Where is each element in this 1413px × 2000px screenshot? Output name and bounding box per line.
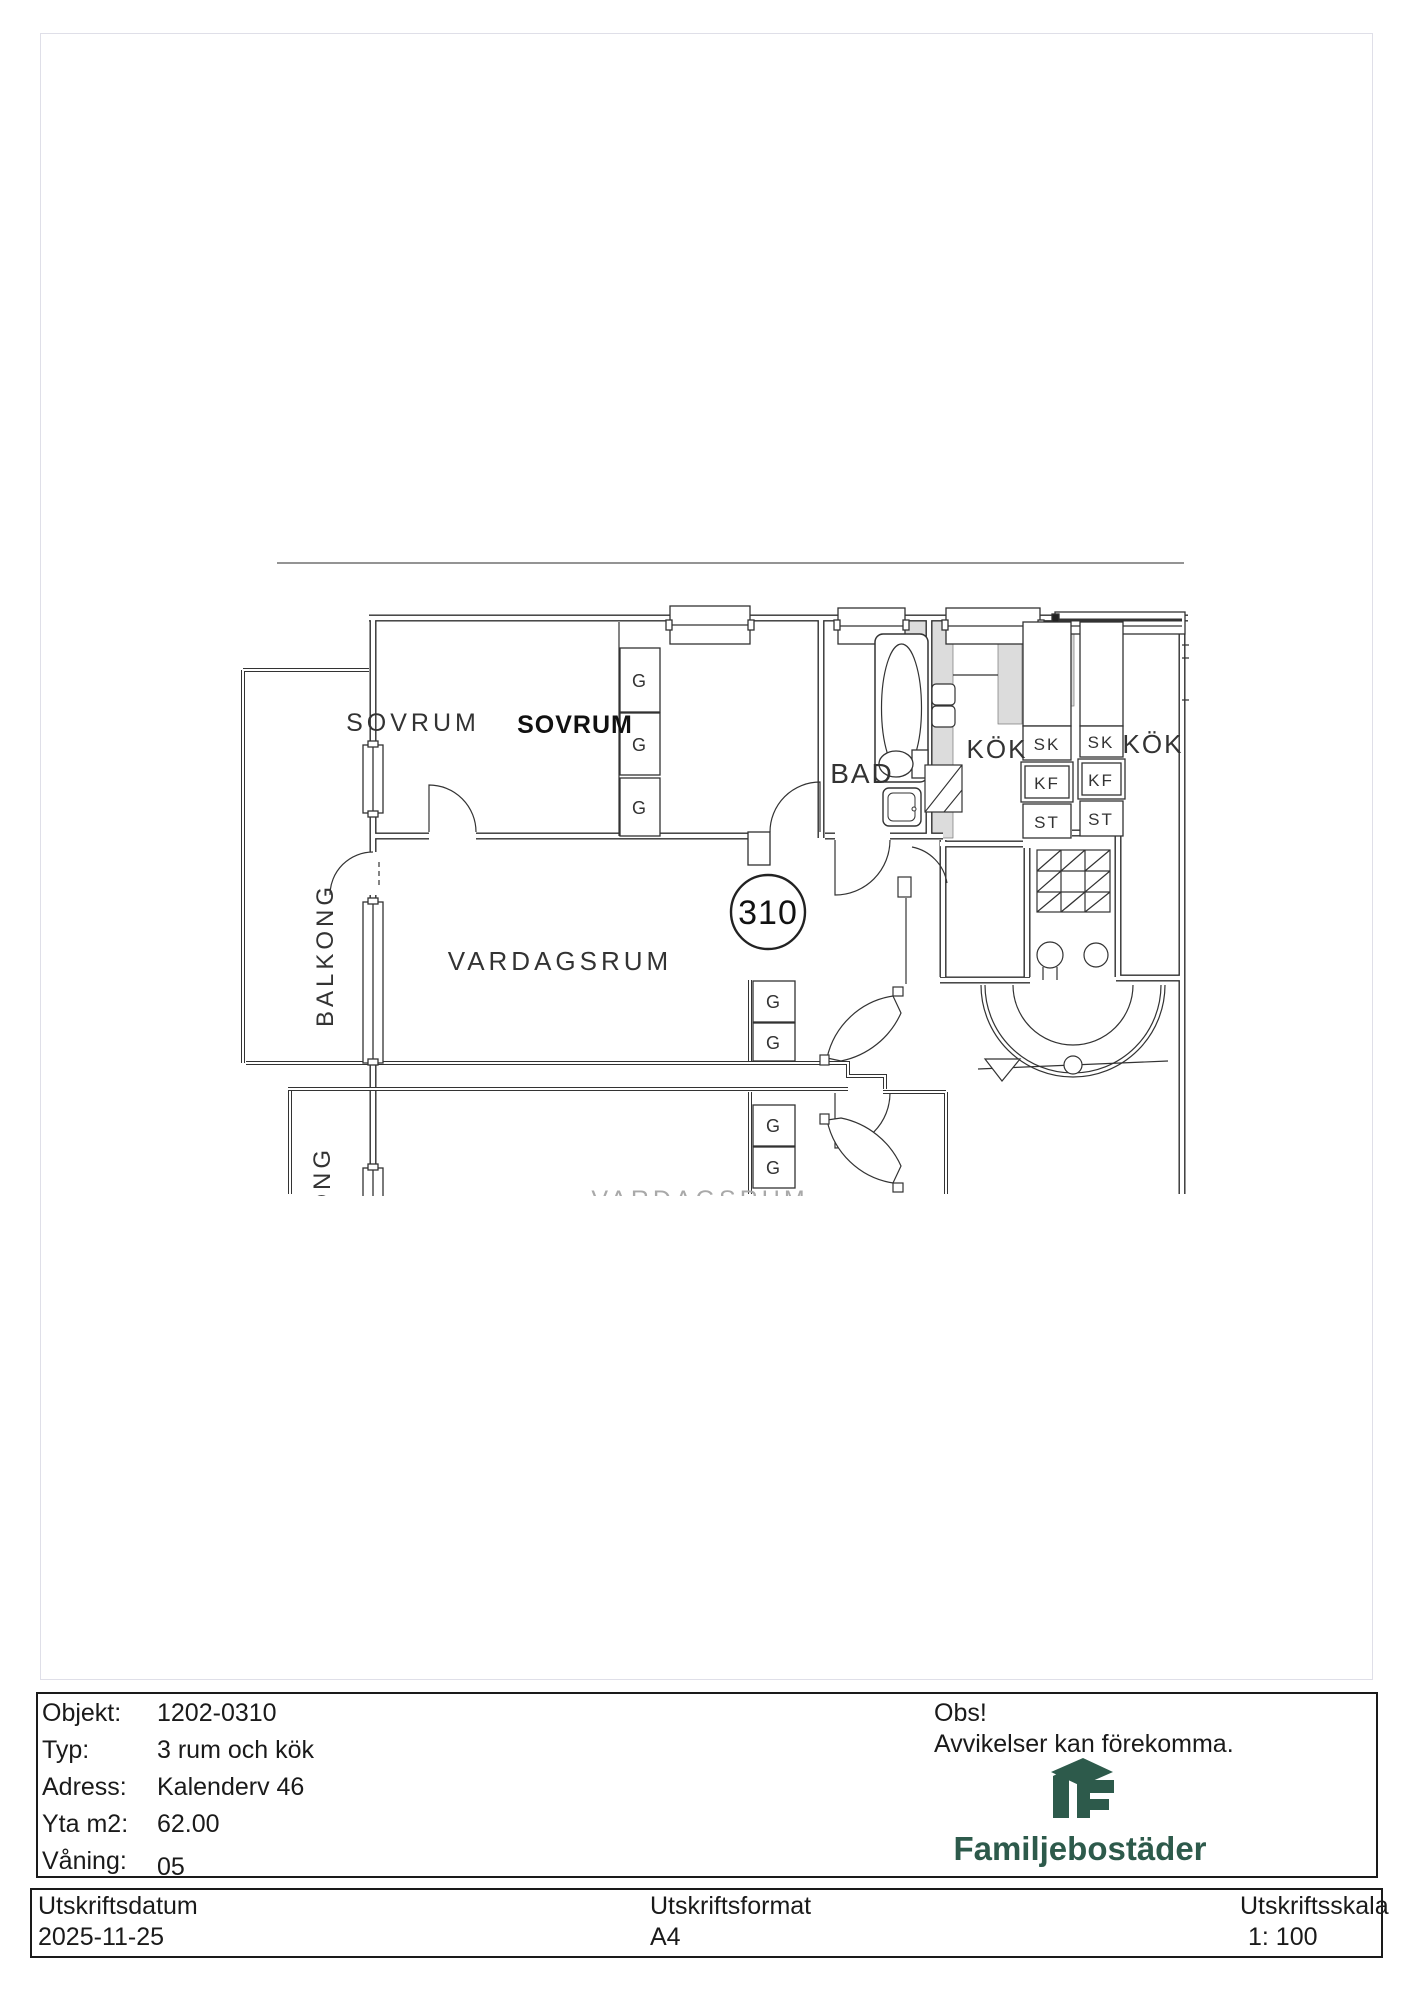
familjebostader-logo-icon xyxy=(1047,1754,1117,1822)
bathroom-fixtures xyxy=(875,634,928,826)
window-left-living xyxy=(363,898,383,1065)
tall-cabinet-box xyxy=(1023,622,1071,726)
door-bathroom xyxy=(835,840,890,895)
wardrobe-label: G xyxy=(632,798,648,818)
object-info-table: Objekt: 1202-0310 Typ: 3 rum och kök Adr… xyxy=(36,1692,1378,1878)
info-row-value: Kalenderv 46 xyxy=(157,1773,304,1802)
info-row-label: Objekt: xyxy=(42,1699,121,1728)
window-left-bedroom xyxy=(363,741,383,817)
wardrobe-column-hall xyxy=(753,981,795,1188)
info-row-value: 3 rum och kök xyxy=(157,1736,314,1765)
notice-title: Obs! xyxy=(934,1698,1234,1729)
room-label-bathroom: BAD xyxy=(830,758,894,789)
wardrobe-label: G xyxy=(632,735,648,755)
cabinet-column-1 xyxy=(1021,622,1073,838)
stair-inner-arc xyxy=(1013,985,1133,1045)
footer-value-format: A4 xyxy=(650,1923,681,1952)
entry-door-frame xyxy=(898,877,911,897)
wardrobe-label: G xyxy=(766,1033,782,1053)
info-row-value: 05 xyxy=(157,1853,185,1882)
cabinet-column-2 xyxy=(1078,622,1125,836)
floor-plan: 310 SOVRUM SOVRUM BAD KÖK KÖK VARDAGSRUM… xyxy=(230,556,1190,1196)
footer-label-date: Utskriftsdatum xyxy=(38,1892,198,1921)
info-row-label: Våning: xyxy=(42,1847,127,1876)
room-label-kitchen-left: KÖK xyxy=(967,734,1028,764)
stairwell xyxy=(978,850,1168,1081)
kf-label: KF xyxy=(1088,771,1114,790)
leaf-door-lower xyxy=(827,1118,901,1183)
door-bedroom-right xyxy=(770,782,820,832)
window-top-1 xyxy=(666,606,754,644)
window-left-lower xyxy=(363,1164,383,1196)
info-row-label: Yta m2: xyxy=(42,1810,128,1839)
footer-value-date: 2025-11-25 xyxy=(38,1923,164,1952)
info-row-label: Adress: xyxy=(42,1773,127,1802)
sink-basin xyxy=(888,793,915,821)
info-row-value: 1202-0310 xyxy=(157,1699,277,1728)
room-label-bedroom-left: SOVRUM xyxy=(346,709,480,737)
wardrobe-label: G xyxy=(766,1116,782,1136)
kitchen-sink-2 xyxy=(932,706,955,727)
floorplan-document: { "plan": { "apartment_number": "310", "… xyxy=(0,0,1413,2000)
kf-label: KF xyxy=(1034,774,1060,793)
footer-label-format: Utskriftsformat xyxy=(650,1892,811,1921)
wall-stub xyxy=(748,832,770,865)
door-bedroom-left xyxy=(429,785,476,832)
footer-value-scale: 1: 100 xyxy=(1248,1923,1318,1952)
floor-plan-drawing: 310 SOVRUM SOVRUM BAD KÖK KÖK VARDAGSRUM… xyxy=(230,556,1190,1196)
footer-label-scale: Utskriftsskala xyxy=(1240,1892,1389,1921)
brand-wordmark: Familjebostäder xyxy=(930,1830,1230,1868)
info-row-value: 62.00 xyxy=(157,1810,220,1839)
kitchen-sink-1 xyxy=(932,684,955,705)
tall-cabinet-box xyxy=(1080,622,1123,726)
room-label-balcony-lower: BALKONG xyxy=(309,1146,336,1196)
sk-label: SK xyxy=(1034,735,1061,754)
leaf-door-upper xyxy=(827,996,901,1061)
sk-label: SK xyxy=(1088,733,1115,752)
apartment-number: 310 xyxy=(738,894,798,932)
apartment-number-badge: 310 xyxy=(731,875,805,949)
room-label-bedroom-right: SOVRUM xyxy=(517,711,633,739)
shaft-circle-2 xyxy=(1084,943,1108,967)
info-row-label: Typ: xyxy=(42,1736,89,1765)
room-label-living: VARDAGSRUM xyxy=(448,946,672,976)
stair-newel xyxy=(1064,1056,1082,1074)
wardrobe-label: G xyxy=(632,671,648,691)
print-info-footer: Utskriftsdatum 2025-11-25 Utskriftsforma… xyxy=(30,1888,1383,1958)
st-label: ST xyxy=(1034,813,1060,832)
room-label-kitchen-right: KÖK xyxy=(1123,729,1184,759)
shaft-circle-1 xyxy=(1037,942,1063,968)
railings-and-slabs xyxy=(243,670,946,1194)
st-label: ST xyxy=(1088,810,1114,829)
clipped-room-label: VARDAGSRUM xyxy=(591,1186,808,1196)
notice: Obs! Avvikelser kan förekomma. xyxy=(934,1698,1234,1760)
stair-direction-arrow xyxy=(985,1059,1020,1081)
room-label-balcony: BALKONG xyxy=(312,883,339,1027)
wardrobe-label: G xyxy=(766,1158,782,1178)
wardrobe-label: G xyxy=(766,992,782,1012)
